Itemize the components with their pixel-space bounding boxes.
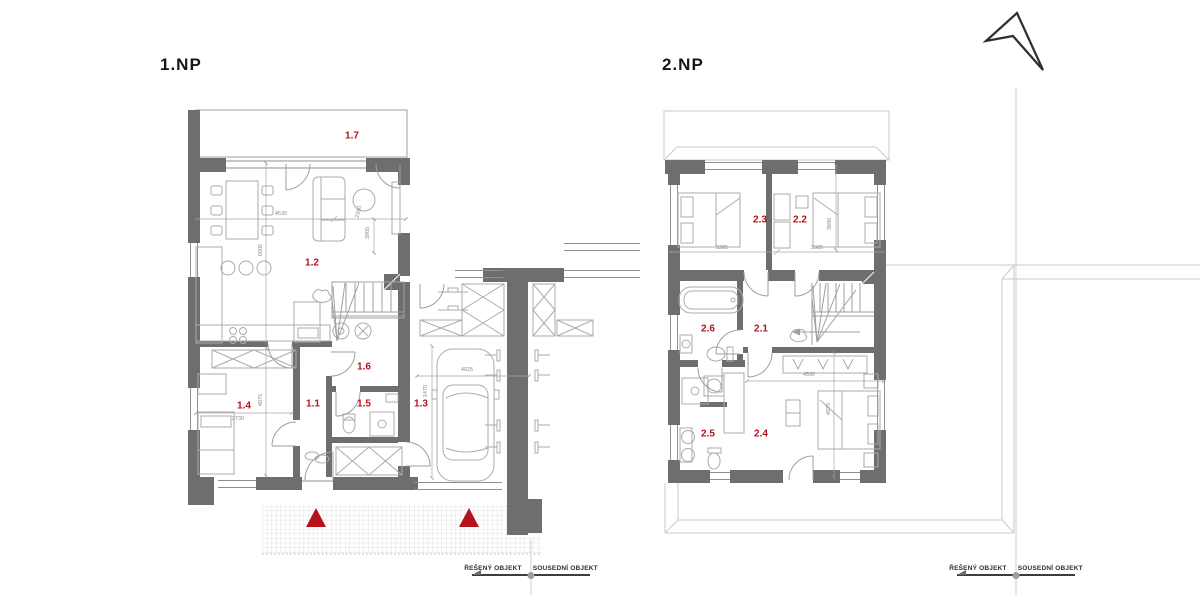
floor1-walls <box>188 110 564 535</box>
section-triangle-icon <box>957 570 966 575</box>
paving-hatch <box>262 505 542 554</box>
dimension-label: 4075 <box>826 403 832 415</box>
room-label-1-1: 1.1 <box>306 399 320 410</box>
dimension-label: 4590 <box>803 372 815 378</box>
floor1-furniture <box>196 177 402 475</box>
terrace-outline <box>195 110 407 160</box>
dimension-label: 2730 <box>232 416 244 422</box>
floor1-plan <box>188 110 640 554</box>
north-arrow-icon <box>986 13 1043 70</box>
room-label-2-6: 2.6 <box>701 324 715 335</box>
room-label-1-3: 1.3 <box>414 399 428 410</box>
room-label-1-2: 1.2 <box>305 258 319 269</box>
boundary-marker-right: ŘEŠENÝ OBJEKT SOUSEDNÍ OBJEKT <box>957 565 1075 576</box>
dimension-label: 3890 <box>827 218 833 230</box>
section-triangle-icon <box>472 570 481 575</box>
dimension-label: 3385 <box>716 245 728 251</box>
dimension-label: 6005 <box>258 244 264 256</box>
floor2-stairs <box>800 283 874 345</box>
room-label-2-5: 2.5 <box>701 429 715 440</box>
floorplan-sheet: 1.NP 2.NP <box>0 0 1200 600</box>
boundary-dot-icon <box>528 572 535 579</box>
floor1-stairs <box>332 282 404 341</box>
room-label-2-1: 2.1 <box>754 324 768 335</box>
plan-drawing <box>0 0 1200 600</box>
floor2-plan <box>664 111 1200 533</box>
room-label-2-3: 2.3 <box>753 215 767 226</box>
floor2-walls <box>665 160 886 483</box>
room-label-2-2: 2.2 <box>793 215 807 226</box>
room-label-1-7: 1.7 <box>345 131 359 142</box>
dimension-label: 4530 <box>275 211 287 217</box>
dimension-label: 4025 <box>461 367 473 373</box>
dimension-label: 3905 <box>365 227 371 239</box>
room-label-1-6: 1.6 <box>357 362 371 373</box>
roof-outline <box>664 111 1200 533</box>
room-label-1-5: 1.5 <box>357 399 371 410</box>
room-label-2-4: 2.4 <box>754 429 768 440</box>
garage-storage <box>420 284 593 453</box>
boundary-marker-left: ŘEŠENÝ OBJEKT SOUSEDNÍ OBJEKT <box>472 565 590 576</box>
neighbor-object-label: SOUSEDNÍ OBJEKT <box>533 565 598 572</box>
boundary-dot-icon <box>1013 572 1020 579</box>
dimension-label: 1470 <box>423 385 429 397</box>
dimension-label: 3385 <box>811 245 823 251</box>
dimension-label: 4075 <box>258 394 264 406</box>
room-label-1-4: 1.4 <box>237 401 251 412</box>
neighbor-object-label: SOUSEDNÍ OBJEKT <box>1018 565 1083 572</box>
